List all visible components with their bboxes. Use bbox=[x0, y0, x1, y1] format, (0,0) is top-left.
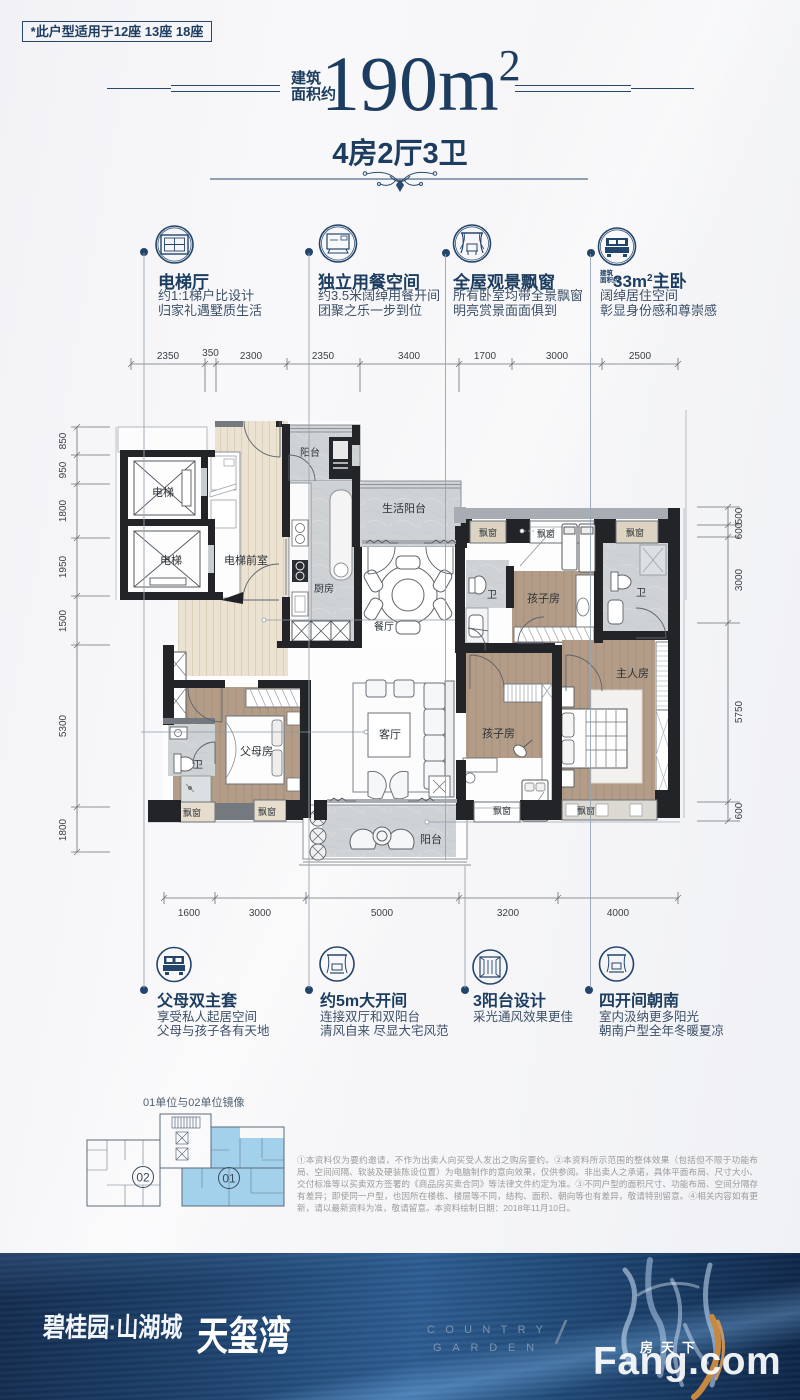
svg-text:飘窗: 飘窗 bbox=[479, 527, 497, 538]
svg-text:01: 01 bbox=[222, 1172, 236, 1186]
svg-text:3000: 3000 bbox=[734, 568, 745, 591]
svg-text:飘窗: 飘窗 bbox=[537, 528, 555, 539]
svg-text:主人房: 主人房 bbox=[616, 667, 649, 680]
svg-text:600: 600 bbox=[734, 802, 745, 819]
svg-text:5750: 5750 bbox=[734, 700, 745, 723]
svg-text:850: 850 bbox=[58, 432, 69, 449]
svg-text:孩子房: 孩子房 bbox=[527, 592, 560, 605]
svg-text:1600: 1600 bbox=[178, 908, 201, 919]
svg-text:1950: 1950 bbox=[58, 555, 69, 578]
svg-text:3000: 3000 bbox=[249, 908, 272, 919]
svg-text:02: 02 bbox=[136, 1171, 150, 1185]
svg-text:生活阳台: 生活阳台 bbox=[382, 501, 426, 515]
svg-text:阳台: 阳台 bbox=[300, 446, 320, 459]
svg-text:阳台: 阳台 bbox=[420, 832, 442, 846]
svg-text:5000: 5000 bbox=[371, 908, 394, 919]
svg-text:1500: 1500 bbox=[58, 609, 69, 632]
svg-text:电梯: 电梯 bbox=[152, 486, 174, 499]
svg-text:1800: 1800 bbox=[58, 818, 69, 841]
svg-text:飘窗: 飘窗 bbox=[183, 807, 201, 818]
svg-text:2500: 2500 bbox=[629, 351, 652, 362]
svg-text:1800: 1800 bbox=[58, 499, 69, 522]
svg-text:卫: 卫 bbox=[636, 588, 646, 599]
svg-text:5300: 5300 bbox=[58, 714, 69, 737]
svg-text:电梯: 电梯 bbox=[160, 554, 182, 567]
svg-text:600: 600 bbox=[734, 522, 745, 539]
svg-text:500: 500 bbox=[734, 507, 745, 524]
svg-text:3000: 3000 bbox=[546, 351, 569, 362]
svg-text:卫: 卫 bbox=[193, 760, 203, 771]
svg-text:父母房: 父母房 bbox=[240, 745, 273, 758]
svg-text:餐厅: 餐厅 bbox=[374, 620, 394, 633]
svg-text:2350: 2350 bbox=[157, 351, 180, 362]
svg-text:客厅: 客厅 bbox=[379, 727, 401, 741]
svg-text:厨房: 厨房 bbox=[314, 582, 334, 595]
svg-text:电梯前室: 电梯前室 bbox=[224, 553, 268, 567]
svg-text:卫: 卫 bbox=[487, 590, 497, 601]
svg-text:4000: 4000 bbox=[607, 908, 630, 919]
svg-text:950: 950 bbox=[58, 461, 69, 478]
svg-text:飘窗: 飘窗 bbox=[493, 805, 511, 816]
svg-text:孩子房: 孩子房 bbox=[482, 727, 515, 740]
svg-text:350: 350 bbox=[202, 348, 219, 359]
svg-text:飘窗: 飘窗 bbox=[626, 527, 644, 538]
svg-text:3400: 3400 bbox=[398, 351, 421, 362]
svg-text:飘窗: 飘窗 bbox=[577, 805, 595, 816]
svg-text:3200: 3200 bbox=[497, 908, 520, 919]
svg-text:飘窗: 飘窗 bbox=[258, 806, 276, 817]
svg-text:2300: 2300 bbox=[240, 351, 263, 362]
svg-text:2350: 2350 bbox=[312, 351, 335, 362]
svg-text:1700: 1700 bbox=[474, 351, 497, 362]
